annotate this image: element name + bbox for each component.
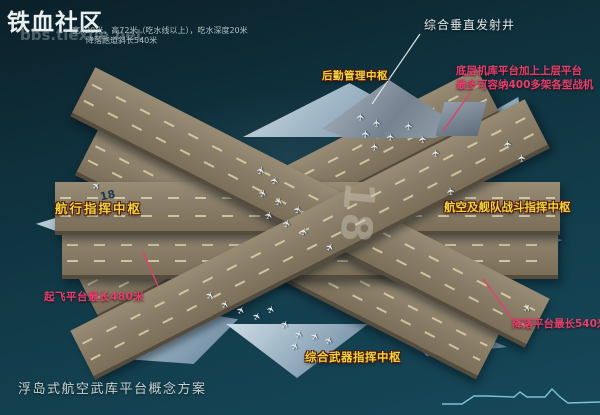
- label-logistics-hub: 后勤管理中枢: [322, 70, 388, 83]
- aircraft-icon: ✈: [357, 113, 367, 121]
- label-weapons-command-hub: 综合武器指挥中枢: [305, 350, 401, 364]
- wave-line: [442, 389, 600, 404]
- label-navigation-hub: 航行指挥中枢: [55, 201, 142, 217]
- aircraft-icon: ✈: [373, 119, 383, 128]
- spec-text-line2: 降落跑道斜长540米: [86, 35, 157, 46]
- label-hangar-capacity: 底层机库平台加上上层平台 最多可容纳400多架各型战机: [456, 64, 593, 92]
- aircraft-icon: ✈: [432, 148, 443, 157]
- aircraft-icon: ✈: [518, 153, 529, 162]
- aircraft-icon: ✈: [504, 139, 515, 148]
- aircraft-icon: ✈: [371, 142, 382, 151]
- diagram-caption: 浮岛式航空武库平台概念方案: [18, 378, 207, 397]
- label-takeoff-platform: 起飞平台最长480米: [44, 291, 144, 304]
- label-hangar-line1: 底层机库平台加上上层平台: [456, 64, 593, 78]
- label-air-fleet-command-hub: 航空及舰队战斗指挥中枢: [444, 200, 571, 214]
- concept-diagram: 18 18 ✈✈✈✈✈✈✈✈✈✈✈✈✈✈✈✈✈✈✈✈✈✈✈✈✈✈✈✈✈✈✈✈✈ …: [0, 0, 600, 415]
- aircraft-icon: ✈: [362, 130, 372, 139]
- label-hangar-line2: 最多可容纳400多架各型战机: [456, 78, 593, 92]
- runway-number-marking: 18: [334, 180, 381, 246]
- label-vertical-launch-silo: 综合垂直发射井: [424, 18, 515, 33]
- aircraft-icon: ✈: [447, 186, 458, 196]
- aircraft-icon: ✈: [405, 121, 416, 130]
- aircraft-icon: ✈: [419, 134, 430, 144]
- aircraft-icon: ✈: [387, 133, 397, 141]
- label-landing-platform: 降落平台最长540米: [512, 318, 600, 331]
